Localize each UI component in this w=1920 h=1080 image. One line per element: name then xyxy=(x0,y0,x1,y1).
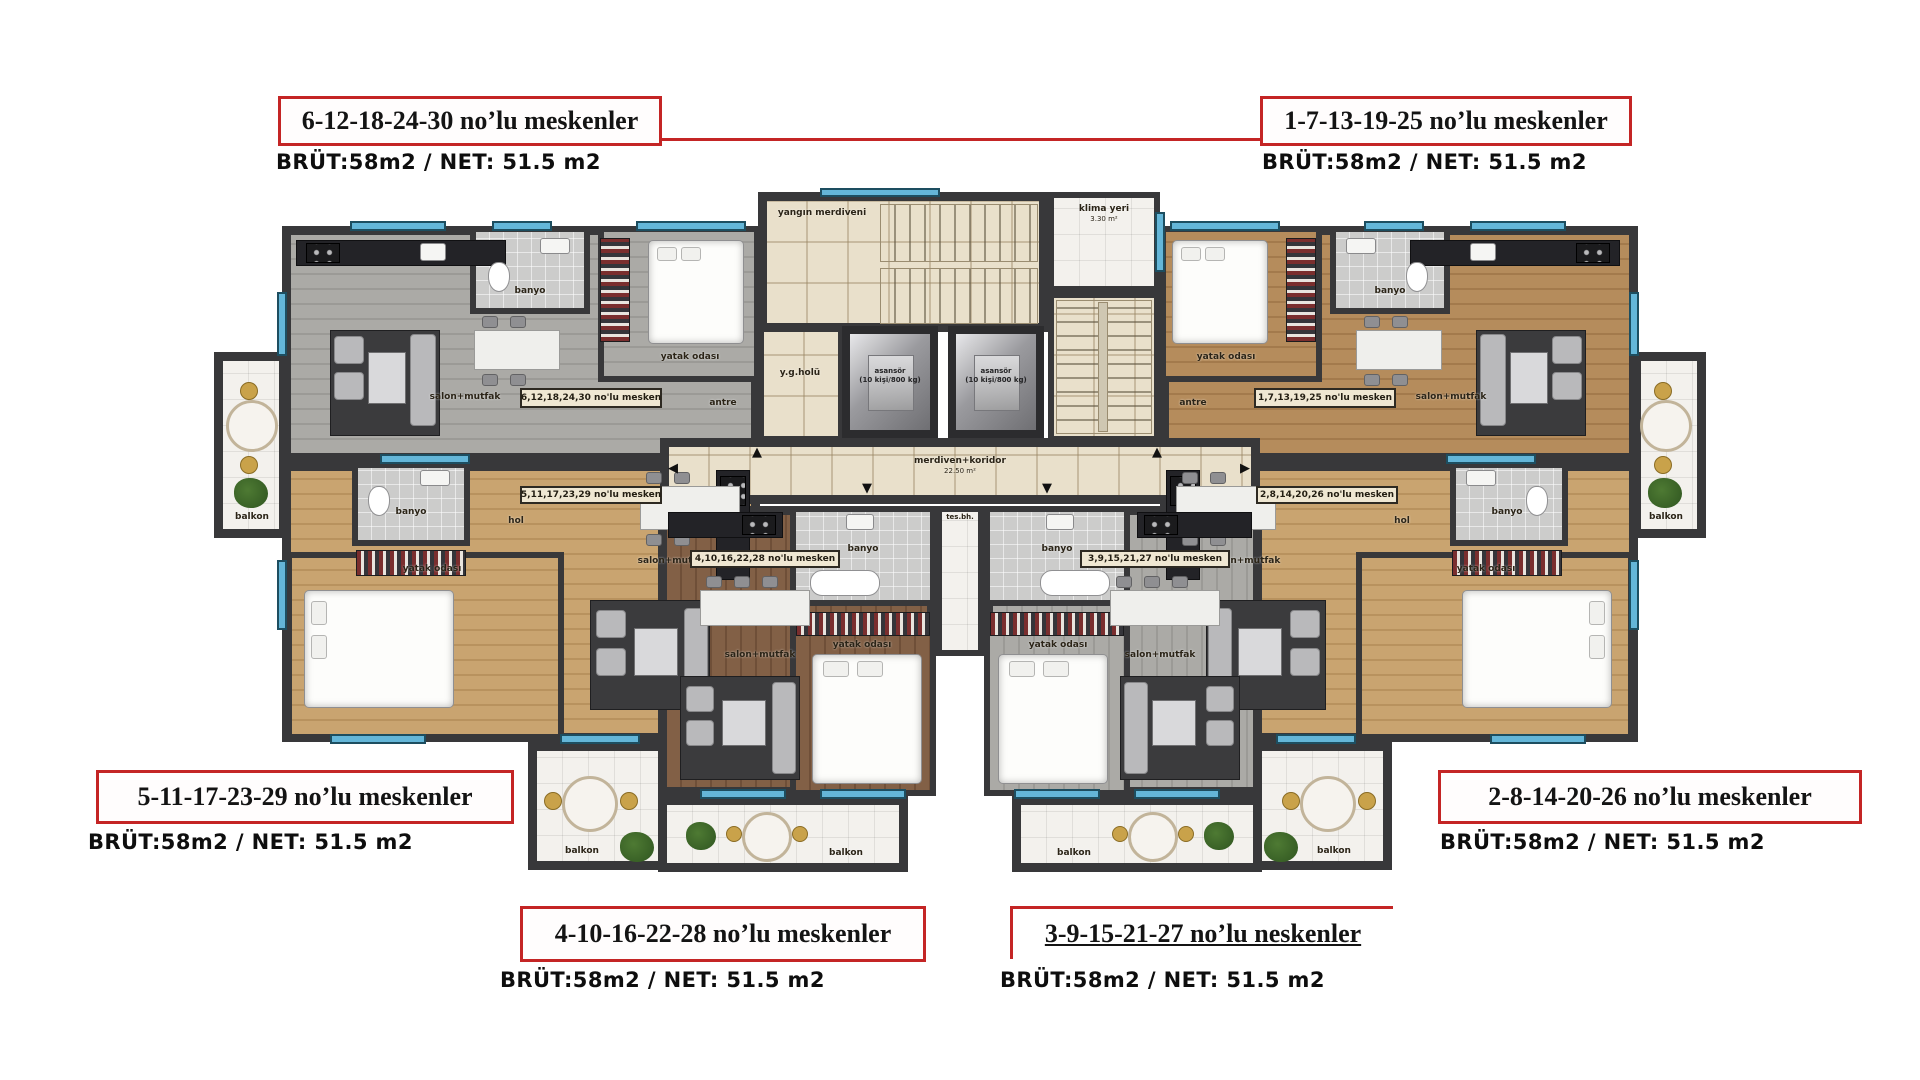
balcony-table xyxy=(742,812,792,862)
sofa xyxy=(772,682,796,774)
dining-chair xyxy=(1116,576,1132,588)
dining-chair xyxy=(1392,374,1408,386)
unit-area-text-bottom-center-left: BRÜT:58m2 / NET: 51.5 m2 xyxy=(500,968,825,992)
balcony-chair xyxy=(240,382,258,400)
room-label-living: salon+mutfak xyxy=(1386,392,1516,402)
unit-label-box-bottom-right: 2-8-14-20-26 no’lu meskenler xyxy=(1438,770,1862,824)
window xyxy=(1276,734,1356,744)
stove xyxy=(1144,515,1178,535)
window xyxy=(1155,212,1165,272)
bath-sink xyxy=(540,238,570,254)
unit-label-title: 2-8-14-20-26 no’lu meskenler xyxy=(1488,782,1812,812)
window xyxy=(1629,560,1639,630)
window xyxy=(330,734,426,744)
unit-label-box-top-right: 1-7-13-19-25 no’lu meskenler xyxy=(1260,96,1632,146)
room-label-hall: hol xyxy=(1372,516,1432,526)
stove xyxy=(742,515,776,535)
armchair xyxy=(686,686,714,712)
window xyxy=(1014,789,1100,799)
window xyxy=(636,221,746,231)
pillow xyxy=(1043,661,1069,677)
dining-table xyxy=(474,330,560,370)
room-label-balcony: balkon xyxy=(1044,848,1104,858)
stove xyxy=(1576,243,1610,263)
window xyxy=(1170,221,1280,231)
bed xyxy=(1172,240,1268,344)
armchair xyxy=(334,336,364,364)
plant xyxy=(1204,822,1234,850)
window xyxy=(1364,221,1424,231)
window xyxy=(1629,292,1639,356)
room-label-balcony: balkon xyxy=(552,846,612,856)
pillow xyxy=(681,247,701,261)
dining-chair xyxy=(646,534,662,546)
pillow xyxy=(1205,247,1225,261)
unit-label-title: 1-7-13-19-25 no’lu meskenler xyxy=(1284,106,1608,136)
unit-tag-bcl: 4,10,16,22,28 no'lu mesken xyxy=(690,550,840,568)
plant xyxy=(1648,478,1682,508)
stair-treads xyxy=(880,204,1038,262)
unit-area-text-bottom-right: BRÜT:58m2 / NET: 51.5 m2 xyxy=(1440,830,1765,854)
pillow xyxy=(311,635,327,659)
room-label-bath: banyo xyxy=(492,286,568,296)
room-label-fire-hall: y.g.holü xyxy=(760,368,840,378)
direction-arrow-icon: ▼ xyxy=(862,482,872,495)
pillow xyxy=(823,661,849,677)
room-label-bedroom: yatak odası xyxy=(1166,352,1286,362)
room-label-balcony: balkon xyxy=(816,848,876,858)
window xyxy=(1470,221,1566,231)
room-label-living: salon+mutfak xyxy=(1100,650,1220,660)
wardrobe xyxy=(990,612,1124,636)
direction-arrow-icon: ▼ xyxy=(1042,482,1052,495)
unit-area-text-top-left: BRÜT:58m2 / NET: 51.5 m2 xyxy=(276,150,601,174)
room-label-entry: antre xyxy=(688,398,758,408)
stair-treads xyxy=(880,268,1038,324)
balcony-chair xyxy=(726,826,742,842)
unit-label-box-bottom-left: 5-11-17-23-29 no’lu meskenler xyxy=(96,770,514,824)
sofa xyxy=(410,334,436,426)
stair-rail xyxy=(1098,302,1108,432)
klima-area: 3.30 m² xyxy=(1052,214,1156,224)
bathtub xyxy=(810,570,880,596)
room-label-bedroom: yatak odası xyxy=(1426,564,1546,574)
coffee-table xyxy=(722,700,766,746)
unit-area-text-bottom-left: BRÜT:58m2 / NET: 51.5 m2 xyxy=(88,830,413,854)
armchair xyxy=(1206,720,1234,746)
elevator-name: asansör xyxy=(980,367,1011,375)
room-label-bath: banyo xyxy=(1462,507,1552,517)
fire-safety-hall xyxy=(758,326,844,442)
room-label-bedroom: yatak odası xyxy=(372,564,492,574)
unit-label-title: 3-9-15-21-27 no’lu neskenler xyxy=(1045,919,1361,949)
dining-chair xyxy=(734,576,750,588)
window xyxy=(380,454,470,464)
unit-label-box-bottom-center-right: 3-9-15-21-27 no’lu neskenler xyxy=(1010,906,1393,959)
armchair xyxy=(334,372,364,400)
red-connector-line xyxy=(659,138,1260,141)
dining-chair xyxy=(1364,374,1380,386)
floor-plan-page: 6-12-18-24-30 no’lu meskenler BRÜT:58m2 … xyxy=(0,0,1920,1080)
bath-sink xyxy=(1346,238,1376,254)
room-label-hall: hol xyxy=(486,516,546,526)
plant xyxy=(620,832,654,862)
dining-chair xyxy=(646,472,662,484)
room-label-balcony: balkon xyxy=(1304,846,1364,856)
bed xyxy=(998,654,1108,784)
corridor-name: merdiven+koridor xyxy=(914,456,1006,466)
unit-label-box-top-left: 6-12-18-24-30 no’lu meskenler xyxy=(278,96,662,146)
unit-tag-bcr: 3,9,15,21,27 no'lu mesken xyxy=(1080,550,1230,568)
bed xyxy=(304,590,454,708)
armchair xyxy=(1552,372,1582,400)
window xyxy=(1490,734,1586,744)
balcony-table xyxy=(226,400,278,452)
bath-sink xyxy=(1046,514,1074,530)
elevator-label: asansör (10 kişi/800 kg) xyxy=(956,367,1036,385)
balcony-chair xyxy=(1654,456,1672,474)
window xyxy=(560,734,640,744)
pillow xyxy=(657,247,677,261)
klima-name: klima yeri xyxy=(1079,204,1129,214)
dining-chair xyxy=(1364,316,1380,328)
service-shaft xyxy=(936,506,984,656)
room-label-bath: banyo xyxy=(366,507,456,517)
room-label-balcony: balkon xyxy=(1636,512,1696,522)
pillow xyxy=(1181,247,1201,261)
armchair xyxy=(1290,648,1320,676)
kitchen-sink xyxy=(1470,243,1496,261)
room-label-living: salon+mutfak xyxy=(400,392,530,402)
pillow xyxy=(1589,635,1605,659)
dining-table xyxy=(1356,330,1442,370)
elevator-capacity: (10 kişi/800 kg) xyxy=(859,376,920,384)
unit-label-title: 6-12-18-24-30 no’lu meskenler xyxy=(302,106,639,136)
coffee-table xyxy=(1238,628,1282,676)
dining-chair xyxy=(482,374,498,386)
window xyxy=(700,789,786,799)
balcony-table xyxy=(562,776,618,832)
dining-table xyxy=(700,590,810,626)
dining-chair xyxy=(1144,576,1160,588)
bathtub xyxy=(1040,570,1110,596)
coffee-table xyxy=(1152,700,1196,746)
balcony-chair xyxy=(1654,382,1672,400)
bed xyxy=(1462,590,1612,708)
room-label-corridor: merdiven+koridor 22.50 m² xyxy=(878,456,1042,476)
room-label-bedroom: yatak odası xyxy=(802,640,922,650)
coffee-table xyxy=(634,628,678,676)
room-label-bedroom: yatak odası xyxy=(998,640,1118,650)
wardrobe xyxy=(796,612,930,636)
dining-chair xyxy=(1182,472,1198,484)
bath-sink xyxy=(1466,470,1496,486)
armchair xyxy=(596,648,626,676)
armchair xyxy=(596,610,626,638)
dining-table xyxy=(1110,590,1220,626)
window xyxy=(492,221,552,231)
elevator-capacity: (10 kişi/800 kg) xyxy=(965,376,1026,384)
window xyxy=(1134,789,1220,799)
wardrobe xyxy=(1286,238,1316,342)
unit-area-text-top-right: BRÜT:58m2 / NET: 51.5 m2 xyxy=(1262,150,1587,174)
window xyxy=(277,560,287,630)
dining-chair xyxy=(1210,472,1226,484)
balcony-table xyxy=(1128,812,1178,862)
window xyxy=(277,292,287,356)
corridor-area: 22.50 m² xyxy=(878,466,1042,476)
balcony-chair xyxy=(1112,826,1128,842)
dining-chair xyxy=(762,576,778,588)
window xyxy=(350,221,446,231)
plant xyxy=(1264,832,1298,862)
unit-tag-tl: 6,12,18,24,30 no'lu mesken xyxy=(520,388,662,408)
window xyxy=(820,789,906,799)
elevator-label: asansör (10 kişi/800 kg) xyxy=(850,367,930,385)
balcony-chair xyxy=(1358,792,1376,810)
balcony-table xyxy=(1640,400,1692,452)
dining-chair xyxy=(706,576,722,588)
wardrobe xyxy=(600,238,630,342)
elevator-cab-right: asansör (10 kişi/800 kg) xyxy=(948,326,1044,438)
elevator-name: asansör xyxy=(874,367,905,375)
room-label-entry: antre xyxy=(1158,398,1228,408)
balcony-table xyxy=(1300,776,1356,832)
pillow xyxy=(1009,661,1035,677)
balcony-chair xyxy=(1178,826,1194,842)
dining-chair xyxy=(482,316,498,328)
armchair xyxy=(1290,610,1320,638)
bed xyxy=(812,654,922,784)
unit-label-title: 5-11-17-23-29 no’lu meskenler xyxy=(137,782,472,812)
room-label-bedroom: yatak odası xyxy=(630,352,750,362)
unit-tag-bl: 5,11,17,23,29 no'lu mesken xyxy=(520,486,662,504)
room-label-living: salon+mutfak xyxy=(700,650,820,660)
sofa xyxy=(1124,682,1148,774)
stove xyxy=(306,243,340,263)
dining-chair xyxy=(1392,316,1408,328)
sofa xyxy=(1480,334,1506,426)
bed xyxy=(648,240,744,344)
direction-arrow-icon: ◀ xyxy=(668,462,678,475)
unit-label-title: 4-10-16-22-28 no’lu meskenler xyxy=(555,919,892,949)
room-label-bath: banyo xyxy=(1352,286,1428,296)
unit-label-box-bottom-center-left: 4-10-16-22-28 no’lu meskenler xyxy=(520,906,926,962)
balcony-chair xyxy=(544,792,562,810)
armchair xyxy=(686,720,714,746)
balcony-chair xyxy=(620,792,638,810)
bath-sink xyxy=(846,514,874,530)
pillow xyxy=(311,601,327,625)
unit-tag-tr: 1,7,13,19,25 no'lu mesken xyxy=(1254,388,1396,408)
direction-arrow-icon: ▲ xyxy=(1152,446,1162,459)
direction-arrow-icon: ▶ xyxy=(1240,462,1250,475)
dining-chair xyxy=(1172,576,1188,588)
armchair xyxy=(1206,686,1234,712)
dining-chair xyxy=(510,374,526,386)
elevator-cab-left: asansör (10 kişi/800 kg) xyxy=(842,326,938,438)
room-label-balcony: balkon xyxy=(222,512,282,522)
unit-area-text-bottom-center-right: BRÜT:58m2 / NET: 51.5 m2 xyxy=(1000,968,1325,992)
kitchen-sink xyxy=(420,243,446,261)
dining-chair xyxy=(510,316,526,328)
unit-tag-br: 2,8,14,20,26 no'lu mesken xyxy=(1256,486,1398,504)
room-label-shaft: tes.bh. xyxy=(936,512,984,522)
pillow xyxy=(857,661,883,677)
balcony-chair xyxy=(1282,792,1300,810)
armchair xyxy=(1552,336,1582,364)
room-label-fire-stairs: yangın merdiveni xyxy=(770,208,874,218)
pillow xyxy=(1589,601,1605,625)
balcony-chair xyxy=(240,456,258,474)
window xyxy=(1446,454,1536,464)
plant xyxy=(686,822,716,850)
bath-sink xyxy=(420,470,450,486)
direction-arrow-icon: ▲ xyxy=(752,446,762,459)
room-label-klima: klima yeri 3.30 m² xyxy=(1052,204,1156,224)
balcony-chair xyxy=(792,826,808,842)
window xyxy=(820,188,940,197)
plant xyxy=(234,478,268,508)
